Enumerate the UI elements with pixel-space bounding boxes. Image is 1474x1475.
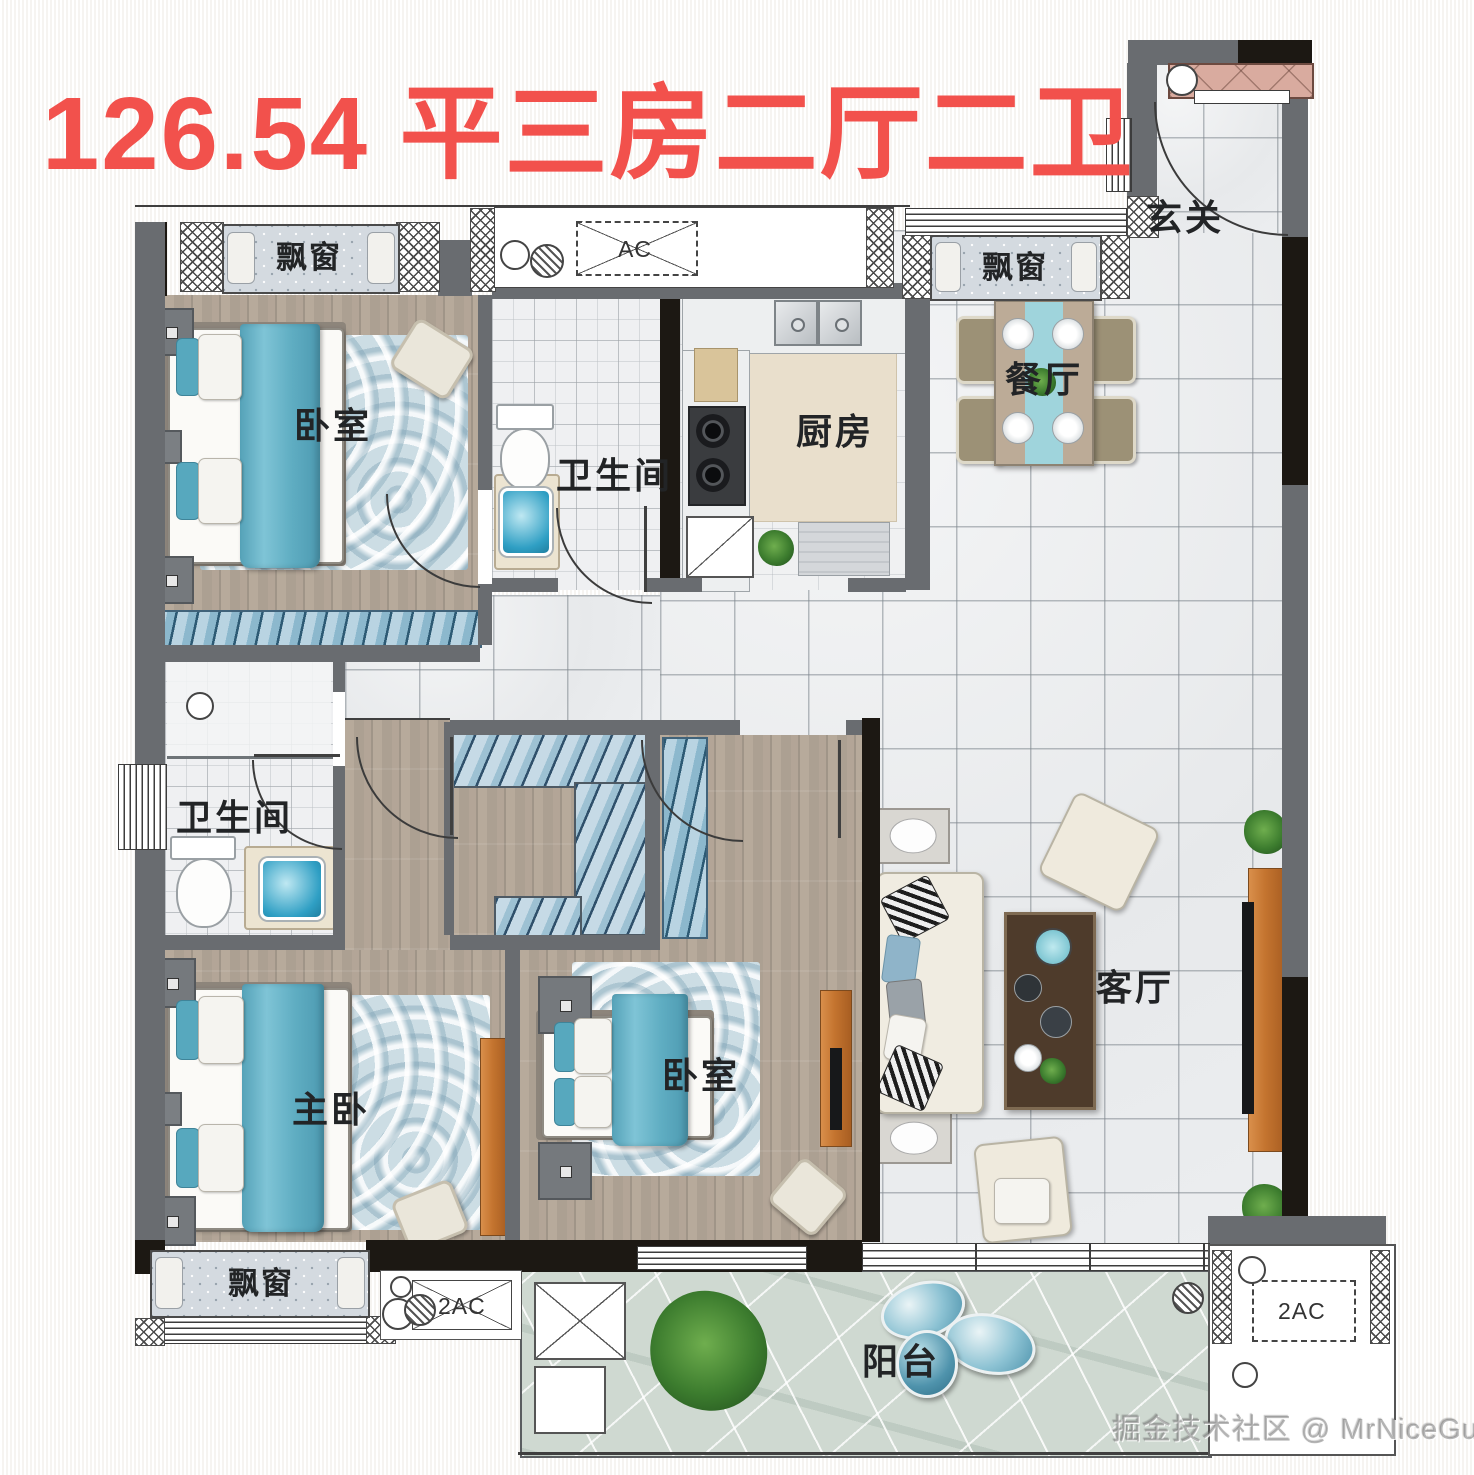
bay-window-top-right-label: 飘窗 bbox=[982, 252, 1048, 283]
sidet bbox=[876, 1112, 952, 1164]
nstand bbox=[538, 1142, 592, 1200]
hatch bbox=[866, 208, 894, 288]
circ-h bbox=[1172, 1282, 1204, 1314]
master-wardrobe bbox=[480, 1038, 508, 1236]
bath-top-label: 卫生间 bbox=[556, 458, 673, 494]
window-bath-left bbox=[118, 764, 167, 850]
line bbox=[254, 754, 340, 757]
bedroom-mid-label: 卧室 bbox=[662, 1058, 740, 1094]
burner bbox=[696, 458, 730, 492]
entry-label: 玄关 bbox=[1146, 200, 1224, 236]
cstrip bbox=[452, 726, 648, 788]
circ bbox=[1034, 928, 1072, 966]
plate bbox=[1052, 412, 1084, 444]
tank bbox=[496, 404, 554, 430]
steel bbox=[818, 300, 862, 346]
hatch bbox=[396, 222, 440, 292]
pilt bbox=[176, 1128, 200, 1188]
wd bbox=[1282, 977, 1308, 1241]
bolster bbox=[935, 242, 961, 292]
w bbox=[1128, 40, 1238, 65]
master-bedroom-label: 主卧 bbox=[292, 1092, 370, 1128]
bowl bbox=[176, 858, 232, 928]
circ bbox=[500, 240, 530, 270]
w bbox=[438, 240, 472, 296]
sidet bbox=[876, 808, 950, 864]
cstrip bbox=[574, 782, 648, 936]
abs bbox=[534, 1366, 606, 1434]
w bbox=[135, 935, 345, 950]
bay-window-top-left-label: 飘窗 bbox=[276, 242, 342, 273]
bay-window-bottom-left-label: 飘窗 bbox=[228, 1268, 294, 1299]
w bbox=[848, 578, 906, 592]
entry-door-leaf bbox=[1194, 90, 1290, 104]
hatch bbox=[902, 235, 932, 299]
left-outer-wall bbox=[135, 222, 165, 1264]
pilw bbox=[198, 458, 242, 524]
kitchen-label: 厨房 bbox=[796, 414, 874, 450]
circ-h bbox=[404, 1294, 436, 1326]
w bbox=[450, 720, 660, 735]
pilw bbox=[574, 1018, 612, 1074]
plate bbox=[1014, 1044, 1042, 1072]
pilw bbox=[994, 1178, 1050, 1224]
bolster bbox=[1071, 242, 1097, 292]
plate bbox=[1002, 412, 1034, 444]
plate bbox=[1002, 318, 1034, 350]
circ bbox=[1238, 1256, 1266, 1284]
living-bedroom-wall bbox=[862, 718, 880, 1242]
circ bbox=[390, 1276, 412, 1298]
dining-label: 餐厅 bbox=[1005, 362, 1083, 398]
plate bbox=[1040, 1006, 1072, 1038]
bolster bbox=[367, 232, 395, 284]
pilt bbox=[176, 462, 200, 520]
hatch bbox=[1370, 1250, 1390, 1344]
balcony-sliding-door bbox=[862, 1243, 1210, 1271]
bolster bbox=[227, 232, 255, 284]
hatch bbox=[1098, 235, 1130, 299]
w bbox=[646, 578, 702, 592]
w bbox=[478, 295, 492, 645]
pilw bbox=[198, 1124, 244, 1192]
bolster bbox=[155, 1257, 183, 1309]
master-mid-divider-wall bbox=[505, 950, 520, 1242]
bedroom-tl-bottom-wall bbox=[135, 645, 480, 662]
living-label: 客厅 bbox=[1096, 970, 1174, 1006]
tank bbox=[170, 836, 236, 860]
hatch bbox=[135, 1318, 165, 1346]
plate bbox=[1014, 974, 1042, 1002]
circ bbox=[1232, 1362, 1258, 1388]
right-outer-wall bbox=[1282, 485, 1308, 977]
plant bbox=[1040, 1058, 1066, 1084]
pilt bbox=[554, 1078, 576, 1126]
watermark: 掘金技术社区 @ MrNiceGuy bbox=[1112, 1406, 1474, 1448]
pilt bbox=[176, 1000, 200, 1060]
bedroom-top-left-label: 卧室 bbox=[294, 408, 372, 444]
page-title: 126.54 平三房二厅二卫 bbox=[42, 50, 1135, 199]
line bbox=[345, 718, 450, 720]
washing-machine bbox=[534, 1282, 626, 1360]
wd bbox=[1238, 40, 1312, 65]
bolster bbox=[337, 1257, 365, 1309]
bedroom-tl-wardrobe bbox=[152, 610, 482, 648]
plate bbox=[1052, 318, 1084, 350]
floor-plan-page: 飘窗 AC 飘窗 玄关 bbox=[0, 0, 1474, 1475]
pilt bbox=[176, 338, 200, 396]
kitchen-cabinet bbox=[686, 516, 754, 578]
circ-h bbox=[530, 244, 564, 278]
w bbox=[846, 720, 862, 735]
hatch bbox=[470, 208, 496, 292]
pilw bbox=[574, 1076, 612, 1128]
wall-hatch bbox=[180, 222, 224, 292]
line bbox=[838, 740, 841, 838]
tv bbox=[830, 1048, 842, 1130]
shower-head bbox=[186, 692, 214, 720]
blanket bbox=[240, 324, 320, 568]
w bbox=[1208, 1216, 1386, 1244]
cutting-board bbox=[694, 348, 738, 402]
line bbox=[518, 1452, 1210, 1455]
wd bbox=[1282, 237, 1308, 485]
tv bbox=[1242, 902, 1254, 1114]
window-top-right bbox=[905, 208, 1127, 236]
basin bbox=[260, 858, 324, 920]
wd bbox=[660, 286, 680, 590]
cstrip bbox=[494, 896, 582, 938]
ac-unit-top-label: AC bbox=[618, 236, 652, 263]
win bbox=[150, 1316, 368, 1344]
kitchen-plant bbox=[758, 530, 794, 566]
ac-unit-bottom-right-label: 2AC bbox=[1278, 1298, 1326, 1325]
burner bbox=[696, 414, 730, 448]
pilt bbox=[554, 1022, 576, 1072]
bowl bbox=[500, 428, 550, 490]
window-bedroom-mid-balcony bbox=[637, 1246, 807, 1270]
basin bbox=[500, 488, 552, 556]
pilw bbox=[198, 334, 242, 400]
pilw bbox=[198, 996, 244, 1064]
gap bbox=[478, 490, 492, 584]
hatch bbox=[1212, 1250, 1232, 1344]
bath-left-label: 卫生间 bbox=[176, 800, 293, 836]
abs bbox=[798, 522, 890, 576]
ac-unit-bottom-left-label: 2AC bbox=[438, 1293, 486, 1320]
w bbox=[660, 720, 740, 735]
w bbox=[450, 935, 660, 950]
kitchen-sink bbox=[774, 300, 818, 346]
balcony-label: 阳台 bbox=[862, 1344, 940, 1380]
